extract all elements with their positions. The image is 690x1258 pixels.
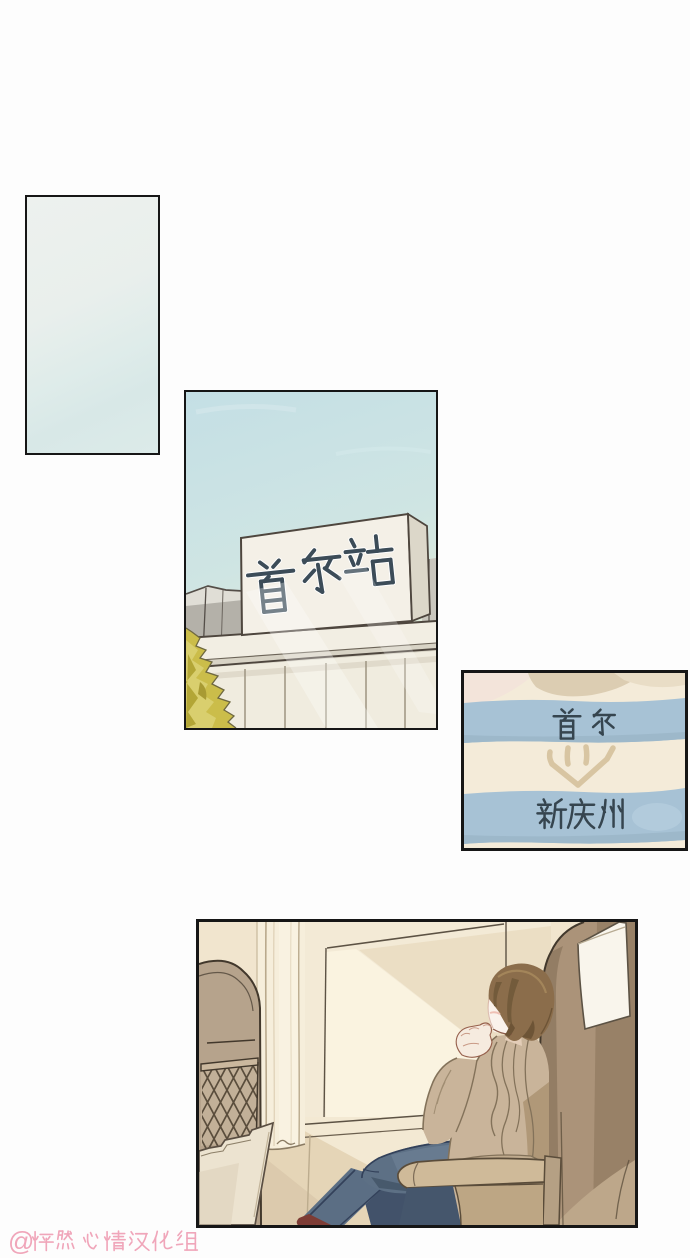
svg-text:@: @ (8, 1226, 34, 1256)
